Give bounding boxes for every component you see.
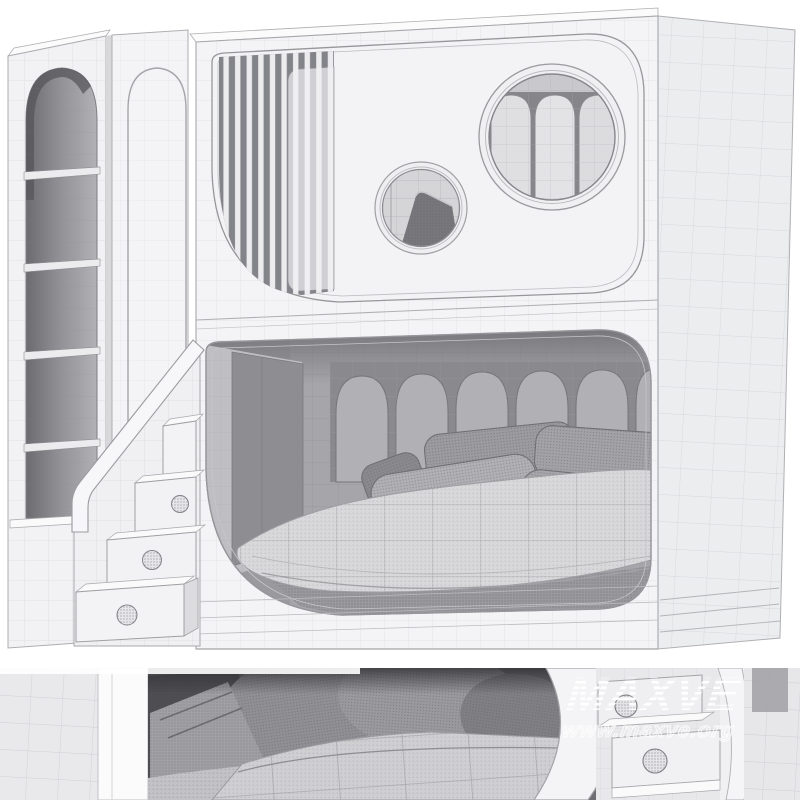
right-wall-shadow (752, 668, 788, 712)
closeup-strip (0, 668, 800, 800)
render-canvas: MAXVE www.maxve.org (0, 0, 800, 800)
frame-post (98, 668, 148, 800)
lower-bunk (206, 330, 689, 625)
main-render (0, 0, 800, 660)
porthole-small (375, 162, 467, 254)
strip-right-frame (534, 668, 800, 800)
strip-left-frame (0, 668, 148, 800)
bed-unit (190, 8, 795, 649)
porthole-large (479, 64, 625, 210)
strip-interior (148, 668, 612, 800)
upper-bunk-panel (212, 34, 644, 302)
lower-bunk-interior (206, 330, 689, 625)
